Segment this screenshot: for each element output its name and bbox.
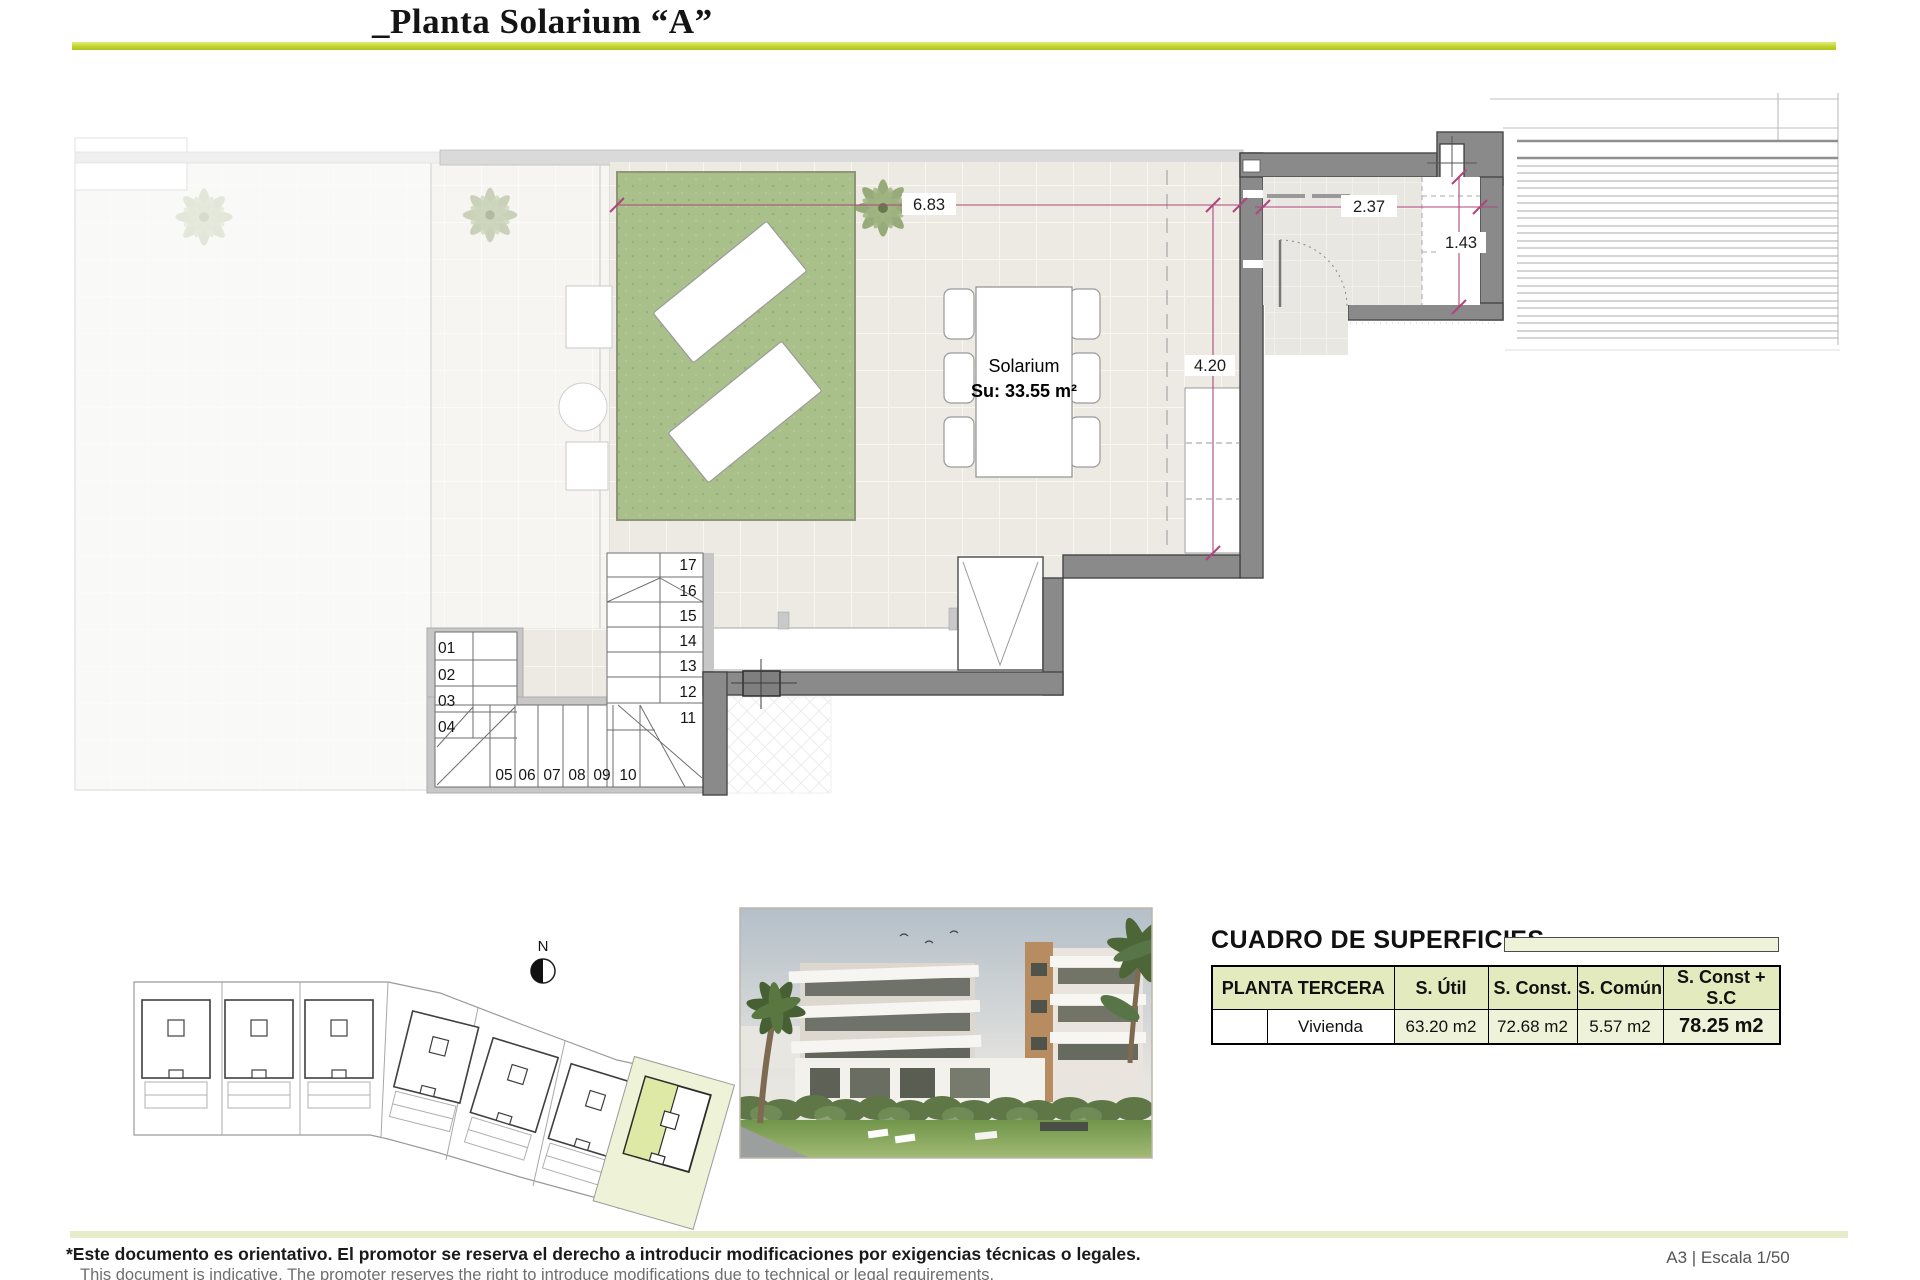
room-area-label: Su: 33.55 m² [971, 381, 1077, 401]
chair [1070, 289, 1100, 339]
palm-icon [463, 188, 518, 243]
room-label: Solarium [988, 356, 1059, 376]
s-util-value: 63.20 m2 [1394, 1010, 1488, 1045]
dim-store-width: 2.37 [1353, 198, 1385, 216]
total-value: 78.25 m2 [1663, 1010, 1780, 1045]
site-plan: N [134, 938, 734, 1229]
col-header-planta: PLANTA TERCERA [1212, 966, 1394, 1010]
stair-step-label: 11 [680, 710, 696, 727]
stair-step-label: 12 [679, 684, 696, 701]
stair-step-label: 06 [518, 767, 535, 784]
stair-step-label: 07 [543, 767, 560, 784]
floor-plan-drawing: Solarium Su: 33.55 m² [0, 0, 1920, 1280]
stair-step-label: 01 [438, 640, 455, 657]
stair-step-label: 03 [438, 693, 455, 710]
lower-ledge [713, 628, 958, 670]
disclaimer-es: *Este documento es orientativo. El promo… [66, 1244, 1141, 1265]
stair-step-label: 09 [593, 767, 610, 784]
grass-area [617, 172, 855, 520]
plan-sheet: _Planta Solarium “A” [0, 0, 1920, 1280]
stair-step-label: 08 [568, 767, 585, 784]
row-key-cell [1212, 1010, 1267, 1045]
disclaimer-en: This document is indicative. The promote… [80, 1266, 994, 1280]
chair [944, 289, 974, 339]
sheet-scale-label: A3 | Escala 1/50 [1638, 1248, 1818, 1268]
col-header-const: S. Const. [1488, 966, 1577, 1010]
pergola-slats [1490, 93, 1840, 350]
dim-terrace-depth: 4.20 [1194, 357, 1226, 375]
surfaces-table: PLANTA TERCERA S. Útil S. Const. S. Comú… [1211, 965, 1781, 1045]
stair-step-label: 10 [619, 767, 637, 784]
table-row: Vivienda 63.20 m2 72.68 m2 5.57 m2 78.25… [1212, 1010, 1780, 1045]
stair-step-label: 13 [679, 658, 696, 675]
stair-step-label: 04 [438, 719, 456, 736]
neighbour-tiles-faded [727, 697, 831, 793]
chair [944, 353, 974, 403]
stair-step-label: 05 [495, 767, 512, 784]
post [949, 608, 957, 630]
boundary-band-left [75, 152, 440, 163]
row-label-cell: Vivienda [1267, 1010, 1394, 1045]
void [1063, 578, 1240, 628]
building-render-photo [730, 908, 1175, 1158]
palm-icon [175, 188, 232, 245]
footer-accent-rule [70, 1231, 1848, 1238]
chair [1070, 417, 1100, 467]
col-header-comun: S. Común [1577, 966, 1663, 1010]
north-arrow-icon: N [531, 938, 555, 983]
surfaces-panel: CUADRO DE SUPERFICIES PLANTA TERCERA S. … [1211, 926, 1779, 1045]
post [778, 612, 789, 629]
stair-step-label: 17 [679, 557, 696, 574]
col-header-total: S. Const + S.C [1663, 966, 1780, 1010]
stair-step-label: 14 [679, 633, 697, 650]
shaft-box [958, 557, 1043, 670]
col-header-util: S. Útil [1394, 966, 1488, 1010]
stair-step-label: 15 [679, 608, 696, 625]
neighbour-terrace-faded [75, 138, 431, 790]
s-const-value: 72.68 m2 [1488, 1010, 1577, 1045]
north-label: N [538, 938, 549, 955]
dim-store-depth: 1.43 [1445, 234, 1477, 252]
dim-terrace-width: 6.83 [913, 196, 945, 214]
stair-step-label: 16 [679, 583, 696, 600]
surfaces-title-bar [1504, 937, 1779, 952]
stair-step-label: 02 [438, 667, 455, 684]
s-comun-value: 5.57 m2 [1577, 1010, 1663, 1045]
chair [944, 417, 974, 467]
dining-set: Solarium Su: 33.55 m² [944, 287, 1100, 477]
